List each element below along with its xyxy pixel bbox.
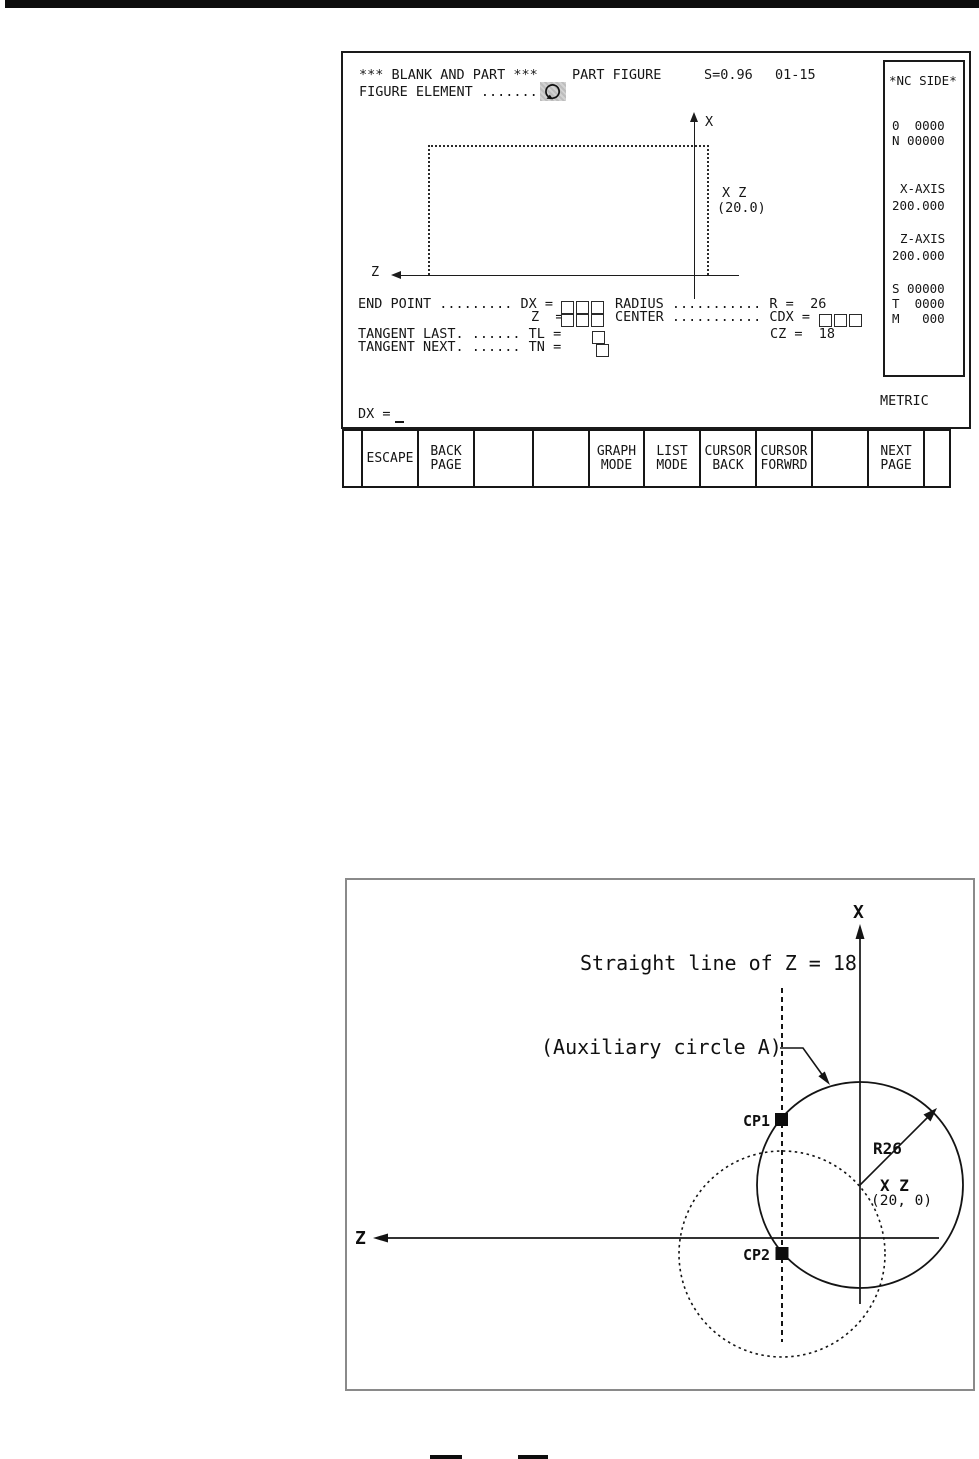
z-axis-caption: Z-AXIS	[900, 231, 945, 246]
softkey-cursor-back[interactable]: CURSORBACK	[699, 429, 757, 488]
point-coordinates: (20.0)	[717, 201, 766, 215]
softkey-graph-mode[interactable]: GRAPHMODE	[588, 429, 645, 488]
softkey-next-page[interactable]: NEXTPAGE	[867, 429, 925, 488]
tangent-next-field-label: TANGENT NEXT. ...... TN =	[358, 340, 561, 354]
nc-side-title: *NC SIDE*	[889, 73, 957, 88]
input-placeholder-square	[596, 344, 609, 357]
softkey-label: MODE	[601, 459, 632, 473]
misc-code: M 000	[892, 311, 945, 326]
blank-outline-dotted-rect	[428, 145, 709, 275]
softkey-escape[interactable]: ESCAPE	[361, 429, 419, 488]
x-axis-line	[694, 121, 696, 299]
softkey-edge-right	[923, 429, 951, 488]
softkey-label: CURSOR	[761, 445, 808, 459]
softkey-blank-1[interactable]	[473, 429, 534, 488]
aux-label-arrowhead	[818, 1072, 830, 1086]
point-label: X Z	[722, 186, 746, 200]
page-indicator: 01-15	[775, 68, 816, 82]
manual-page: *** BLANK AND PART *** PART FIGURE S=0.9…	[0, 0, 979, 1459]
center-point-coordinates: (20, 0)	[871, 1193, 932, 1209]
x-axis-position: 200.000	[892, 198, 945, 213]
nc-screen-panel: *** BLANK AND PART *** PART FIGURE S=0.9…	[341, 51, 971, 429]
circular-arrow-icon	[540, 82, 566, 101]
tn-input-placeholder	[596, 340, 611, 359]
softkey-label: CURSOR	[705, 445, 752, 459]
footer-mark	[430, 1455, 462, 1459]
unit-indicator: METRIC	[880, 394, 929, 408]
softkey-label: MODE	[656, 459, 687, 473]
softkey-list-mode[interactable]: LISTMODE	[643, 429, 701, 488]
text-cursor	[395, 421, 404, 423]
z-axis-label: Z	[355, 1228, 366, 1249]
z-axis-label: Z	[371, 265, 379, 279]
sequence-number: N 00000	[892, 133, 945, 148]
geometry-diagram-panel: X Z Straight line of Z = 18 (Auxiliary c…	[345, 878, 975, 1391]
softkey-blank-3[interactable]	[811, 429, 869, 488]
softkey-blank-2[interactable]	[532, 429, 590, 488]
input-placeholder-square	[576, 314, 589, 327]
x-axis-label: X	[853, 902, 864, 923]
x-axis-caption: X-AXIS	[900, 181, 945, 196]
spindle-code: S 00000	[892, 281, 945, 296]
z-axis-line	[400, 275, 739, 277]
screen-subtitle: PART FIGURE	[572, 68, 661, 82]
softkey-back-page[interactable]: BACKPAGE	[417, 429, 475, 488]
z-axis-arrowhead	[391, 271, 401, 279]
cp2-point-marker	[776, 1247, 789, 1260]
softkey-label: FORWRD	[761, 459, 808, 473]
figure-element-label: FIGURE ELEMENT ........	[359, 85, 546, 99]
tool-code: T 0000	[892, 296, 945, 311]
page-header-bar	[5, 0, 979, 8]
radius-label: R26	[873, 1139, 902, 1158]
softkey-label: BACK	[712, 459, 743, 473]
softkey-label: LIST	[656, 445, 687, 459]
x-axis-label: X	[705, 115, 713, 129]
z-field-label: Z =	[531, 310, 564, 324]
arc-element-cursor-icon	[540, 82, 566, 101]
softkey-label: NEXT	[880, 445, 911, 459]
cp1-point-marker	[775, 1113, 788, 1126]
straight-line-annotation: Straight line of Z = 18	[580, 951, 857, 975]
aux-label-leader-line	[780, 1048, 826, 1080]
softkey-row: ESCAPE BACKPAGE GRAPHMODE LISTMODE CURSO…	[342, 429, 951, 488]
scale-indicator: S=0.96	[704, 68, 753, 82]
softkey-edge-left	[342, 429, 363, 488]
cp1-label: CP1	[743, 1112, 770, 1130]
x-axis-arrowhead	[690, 112, 698, 122]
cz-value: CZ = 18	[770, 327, 835, 341]
input-placeholder-square	[849, 314, 862, 327]
softkey-cursor-forward[interactable]: CURSORFORWRD	[755, 429, 813, 488]
nc-side-status-box: *NC SIDE* 0 0000 N 00000 X-AXIS 200.000 …	[883, 60, 965, 377]
softkey-label: PAGE	[430, 459, 461, 473]
auxiliary-circle-annotation: (Auxiliary circle A)	[541, 1035, 782, 1059]
input-placeholder-square	[561, 314, 574, 327]
input-placeholder-square	[834, 314, 847, 327]
footer-mark	[518, 1455, 548, 1459]
end-point-field-label: END POINT ......... DX =	[358, 297, 553, 311]
keyin-prompt[interactable]: DX =	[358, 407, 391, 421]
z-axis-position: 200.000	[892, 248, 945, 263]
softkey-label: GRAPH	[597, 445, 636, 459]
z-axis-arrowhead	[373, 1234, 388, 1243]
input-placeholder-square	[591, 314, 604, 327]
softkey-label: BACK	[430, 445, 461, 459]
screen-title: *** BLANK AND PART ***	[359, 68, 538, 82]
softkey-label: PAGE	[880, 459, 911, 473]
cp2-label: CP2	[743, 1246, 770, 1264]
program-number: 0 0000	[892, 118, 945, 133]
center-field-label: CENTER ........... CDX =	[615, 310, 810, 324]
x-axis-arrowhead	[856, 924, 865, 939]
softkey-label: ESCAPE	[367, 452, 414, 466]
